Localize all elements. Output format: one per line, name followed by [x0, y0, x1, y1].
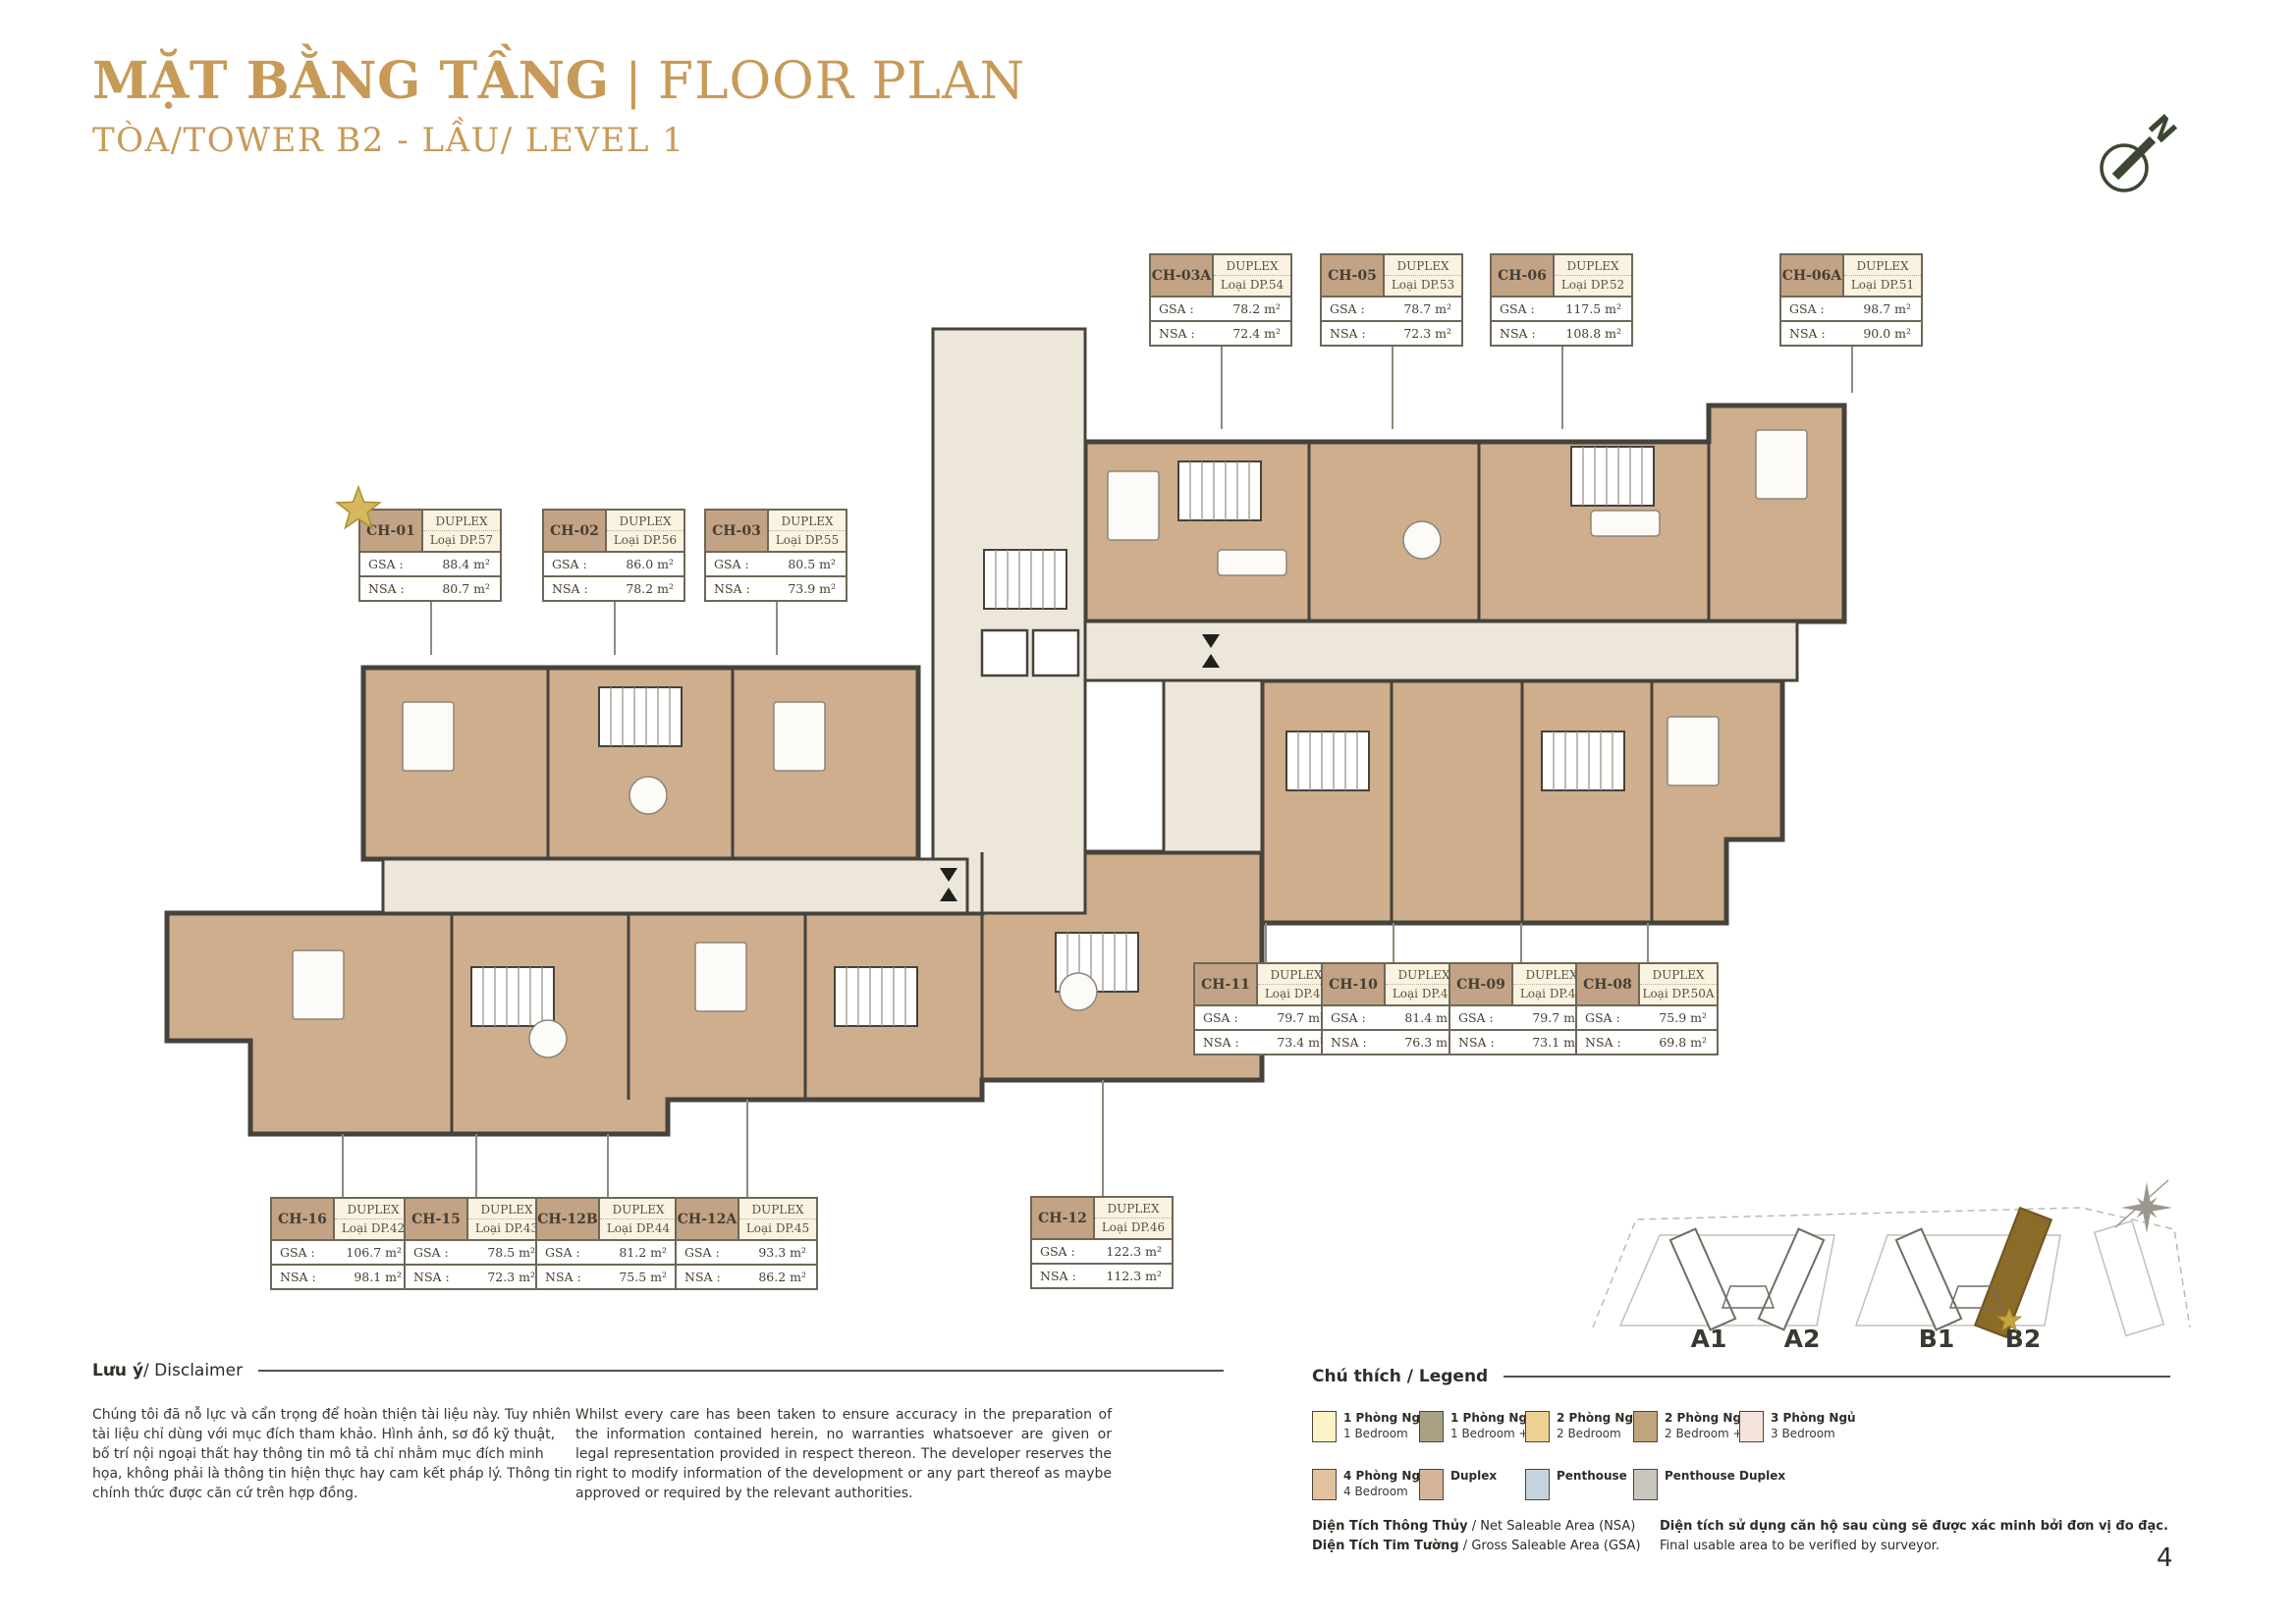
key-plan: A1 A2 B1 B2 — [1593, 1180, 2190, 1353]
leader-line — [614, 602, 616, 655]
gsa-value: 122.3 m² — [1106, 1244, 1162, 1259]
unit-nsa-row: NSA : 73.1 m² — [1450, 1029, 1590, 1054]
leader-line — [1392, 347, 1394, 429]
unit-layout-type: Loại DP.53 — [1385, 275, 1461, 296]
unit-type: DUPLEX — [1385, 255, 1461, 275]
gsa-label: GSA : — [552, 557, 587, 571]
legend-label-en: 2 Bedroom — [1557, 1427, 1642, 1442]
surveyor-note-vi: Diện tích sử dụng căn hộ sau cùng sẽ đượ… — [1660, 1517, 2168, 1537]
nsa-value: 72.4 m² — [1232, 326, 1281, 341]
disclaimer-heading: Lưu ý / Disclaimer — [92, 1361, 1224, 1380]
compass-icon: N — [2102, 109, 2183, 190]
unit-type: DUPLEX — [1640, 964, 1717, 984]
gsa-label: GSA : — [1789, 301, 1825, 316]
unit-nsa-row: NSA : 78.2 m² — [544, 575, 683, 600]
unit-type: DUPLEX — [335, 1199, 411, 1218]
nsa-value: 73.4 m² — [1277, 1035, 1325, 1050]
gsa-label: GSA : — [1331, 1010, 1366, 1025]
unit-type: DUPLEX — [1214, 255, 1290, 275]
legend-labels: 1 Phòng Ngủ 1 Bedroom — [1343, 1411, 1429, 1442]
gsa-value: 78.2 m² — [1232, 301, 1281, 316]
gsa-value: 79.7 m² — [1532, 1010, 1580, 1025]
disclaimer-text-vi: Chúng tôi đã nỗ lực và cẩn trọng để hoàn… — [92, 1406, 575, 1503]
unit-gsa-row: GSA : 78.2 m² — [1151, 296, 1290, 320]
unit-card-CH-06: CH-06 DUPLEX Loại DP.52 GSA : 117.5 m² N… — [1490, 253, 1633, 347]
unit-nsa-row: NSA : 72.3 m² — [406, 1264, 545, 1288]
key-plan-label-b1: B1 — [1919, 1325, 1954, 1353]
gsa-label: GSA : — [545, 1245, 580, 1260]
gsa-label: GSA : — [368, 557, 404, 571]
key-plan-label-a1: A1 — [1691, 1325, 1727, 1353]
gsa-value: 117.5 m² — [1565, 301, 1621, 316]
unit-card-CH-11: CH-11 DUPLEX Loại DP.47 GSA : 79.7 m² NS… — [1193, 962, 1337, 1055]
nsa-label: NSA : — [280, 1270, 316, 1284]
unit-id: CH-03A — [1151, 255, 1214, 296]
legend-item: 3 Phòng Ngủ 3 Bedroom — [1739, 1411, 1856, 1442]
legend-notes-left: Diện Tích Thông Thủy / Net Saleable Area… — [1312, 1517, 1641, 1556]
page-title-separator: | — [626, 53, 642, 110]
unit-layout-type: Loại DP.46 — [1095, 1217, 1172, 1238]
nsa-label: NSA : — [552, 581, 588, 596]
disclaimer-text-en: Whilst every care has been taken to ensu… — [575, 1406, 1112, 1503]
nsa-value: 73.1 m² — [1532, 1035, 1580, 1050]
disclaimer-section: Lưu ý / Disclaimer Chúng tôi đã nỗ lực v… — [92, 1361, 1224, 1503]
unit-card-CH-01: CH-01 DUPLEX Loại DP.57 GSA : 88.4 m² NS… — [358, 509, 502, 602]
unit-card-CH-12B: CH-12B DUPLEX Loại DP.44 GSA : 81.2 m² N… — [535, 1197, 679, 1290]
legend-swatch — [1419, 1469, 1444, 1500]
unit-nsa-row: NSA : 73.4 m² — [1195, 1029, 1335, 1054]
unit-id: CH-05 — [1322, 255, 1385, 296]
nsa-value: 86.2 m² — [758, 1270, 806, 1284]
gsa-value: 88.4 m² — [442, 557, 490, 571]
legend-label-en: 1 Bedroom — [1343, 1427, 1429, 1442]
unit-id: CH-11 — [1195, 964, 1258, 1004]
legend-label-vi: Duplex — [1450, 1469, 1497, 1485]
unit-nsa-row: NSA : 90.0 m² — [1781, 320, 1921, 345]
unit-layout-type: Loại DP.55 — [769, 530, 846, 551]
nsa-value: 72.3 m² — [487, 1270, 535, 1284]
tower-outline-extra — [2095, 1221, 2163, 1336]
unit-id: CH-12A — [677, 1199, 739, 1239]
unit-layout-type: Loại DP.43 — [468, 1218, 545, 1239]
leader-line — [1221, 347, 1223, 429]
unit-card-CH-08: CH-08 DUPLEX Loại DP.50A GSA : 75.9 m² N… — [1575, 962, 1719, 1055]
legend-label-vi: Penthouse Duplex — [1665, 1469, 1785, 1485]
unit-nsa-row: NSA : 108.8 m² — [1492, 320, 1631, 345]
legend-item: Penthouse Duplex — [1633, 1469, 1785, 1500]
legend-label-en: 4 Bedroom — [1343, 1485, 1429, 1500]
unit-card-CH-09: CH-09 DUPLEX Loại DP.49 GSA : 79.7 m² NS… — [1449, 962, 1592, 1055]
unit-type: DUPLEX — [739, 1199, 816, 1218]
gsa-label: GSA : — [684, 1245, 720, 1260]
unit-layout-type: Loại DP.56 — [607, 530, 683, 551]
unit-type: DUPLEX — [1555, 255, 1631, 275]
unit-nsa-row: NSA : 76.3 m² — [1323, 1029, 1462, 1054]
nsa-value: 108.8 m² — [1565, 326, 1621, 341]
left-corridor — [383, 859, 967, 913]
unit-layout-type: Loại DP.51 — [1844, 275, 1921, 296]
legend-label-vi: Penthouse — [1557, 1469, 1627, 1485]
key-plan-label-b2: B2 — [2005, 1325, 2041, 1353]
unit-nsa-row: NSA : 72.3 m² — [1322, 320, 1461, 345]
unit-nsa-row: NSA : 75.5 m² — [537, 1264, 677, 1288]
unit-gsa-row: GSA : 98.7 m² — [1781, 296, 1921, 320]
nsa-value: 90.0 m² — [1863, 326, 1911, 341]
unit-layout-type: Loại DP.45 — [739, 1218, 816, 1239]
nsa-label: NSA : — [1040, 1269, 1076, 1283]
legend-swatch — [1525, 1411, 1550, 1442]
unit-gsa-row: GSA : 88.4 m² — [360, 551, 500, 575]
tower-b1-shape — [1896, 1229, 1961, 1330]
legend-notes-right: Diện tích sử dụng căn hộ sau cùng sẽ đượ… — [1660, 1517, 2168, 1556]
unit-nsa-row: NSA : 72.4 m² — [1151, 320, 1290, 345]
nsa-label: NSA : — [1500, 326, 1536, 341]
unit-gsa-row: GSA : 78.5 m² — [406, 1239, 545, 1264]
unit-card-CH-12A: CH-12A DUPLEX Loại DP.45 GSA : 93.3 m² N… — [675, 1197, 818, 1290]
nsa-label: NSA : — [1458, 1035, 1495, 1050]
unit-card-CH-12: CH-12 DUPLEX Loại DP.46 GSA : 122.3 m² N… — [1030, 1196, 1174, 1289]
gsa-value: 86.0 m² — [626, 557, 674, 571]
nsa-label: NSA : — [1331, 1035, 1367, 1050]
unit-layout-type: Loại DP.42 — [335, 1218, 411, 1239]
unit-gsa-row: GSA : 122.3 m² — [1032, 1238, 1172, 1263]
legend-labels: Penthouse — [1557, 1469, 1627, 1500]
nsa-label: NSA : — [368, 581, 405, 596]
unit-layout-type: Loại DP.50A — [1640, 984, 1717, 1004]
nsa-label: NSA : — [1789, 326, 1826, 341]
gsa-value: 78.7 m² — [1403, 301, 1451, 316]
legend-label-vi: 1 Phòng Ngủ — [1343, 1411, 1429, 1427]
vertical-corridor — [1164, 680, 1262, 852]
leader-line — [475, 1134, 477, 1197]
unit-layout-type: Loại DP.52 — [1555, 275, 1631, 296]
gsa-value: 79.7 m² — [1277, 1010, 1325, 1025]
nsa-value: 80.7 m² — [442, 581, 490, 596]
unit-id: CH-02 — [544, 511, 607, 551]
leader-line — [607, 1134, 609, 1197]
page-subtitle: TÒA/TOWER B2 - LẦU/ LEVEL 1 — [92, 121, 1025, 160]
legend-item: 1 Phòng Ngủ 1 Bedroom — [1312, 1411, 1429, 1442]
unit-nsa-row: NSA : 73.9 m² — [706, 575, 846, 600]
gsa-value: 75.9 m² — [1659, 1010, 1707, 1025]
gsa-note: Diện Tích Tim Tường / Gross Saleable Are… — [1312, 1537, 1641, 1556]
gsa-label: GSA : — [1458, 1010, 1494, 1025]
unit-id: CH-12 — [1032, 1198, 1095, 1238]
unit-card-CH-15: CH-15 DUPLEX Loại DP.43 GSA : 78.5 m² NS… — [404, 1197, 547, 1290]
unit-nsa-row: NSA : 86.2 m² — [677, 1264, 816, 1288]
gsa-value: 80.5 m² — [788, 557, 836, 571]
unit-layout-type: Loại DP.44 — [600, 1218, 677, 1239]
gsa-label: GSA : — [1040, 1244, 1075, 1259]
unit-card-CH-06A: CH-06A DUPLEX Loại DP.51 GSA : 98.7 m² N… — [1779, 253, 1923, 347]
unit-nsa-row: NSA : 112.3 m² — [1032, 1263, 1172, 1287]
unit-card-CH-03A: CH-03A DUPLEX Loại DP.54 GSA : 78.2 m² N… — [1149, 253, 1292, 347]
legend-swatch — [1633, 1411, 1658, 1442]
unit-id: CH-16 — [272, 1199, 335, 1239]
legend-labels: 4 Phòng Ngủ 4 Bedroom — [1343, 1469, 1429, 1500]
legend-section: Chú thích / Legend — [1312, 1367, 2170, 1386]
leader-line — [1265, 923, 1267, 962]
unit-card-CH-16: CH-16 DUPLEX Loại DP.42 GSA : 106.7 m² N… — [270, 1197, 413, 1290]
unit-type: DUPLEX — [607, 511, 683, 530]
nsa-label: NSA : — [684, 1270, 721, 1284]
unit-id: CH-15 — [406, 1199, 468, 1239]
unit-id: CH-08 — [1577, 964, 1640, 1004]
unit-card-CH-10: CH-10 DUPLEX Loại DP.48 GSA : 81.4 m² NS… — [1321, 962, 1464, 1055]
legend-swatch — [1419, 1411, 1444, 1442]
unit-id: CH-12B — [537, 1199, 600, 1239]
unit-gsa-row: GSA : 81.2 m² — [537, 1239, 677, 1264]
nsa-label: NSA : — [714, 581, 750, 596]
nsa-label: NSA : — [1585, 1035, 1621, 1050]
nsa-value: 75.5 m² — [619, 1270, 667, 1284]
unit-gsa-row: GSA : 86.0 m² — [544, 551, 683, 575]
nsa-value: 78.2 m² — [626, 581, 674, 596]
legend-item: Penthouse — [1525, 1469, 1627, 1500]
unit-nsa-row: NSA : 69.8 m² — [1577, 1029, 1717, 1054]
unit-type: DUPLEX — [769, 511, 846, 530]
nsa-value: 69.8 m² — [1659, 1035, 1707, 1050]
legend-label-vi: 3 Phòng Ngủ — [1771, 1411, 1856, 1427]
tower-a2-shape — [1759, 1229, 1824, 1330]
disclaimer-heading-en: / Disclaimer — [143, 1361, 243, 1380]
legend-item: Duplex — [1419, 1469, 1497, 1500]
leader-line — [1520, 923, 1522, 962]
legend-swatch — [1739, 1411, 1764, 1442]
legend-swatch — [1525, 1469, 1550, 1500]
gsa-label: GSA : — [1203, 1010, 1238, 1025]
unit-layout-type: Loại DP.54 — [1214, 275, 1290, 296]
leader-line — [342, 1134, 344, 1197]
legend-labels: Penthouse Duplex — [1665, 1469, 1785, 1500]
surveyor-note-en: Final usable area to be verified by surv… — [1660, 1537, 2168, 1556]
unit-card-CH-03: CH-03 DUPLEX Loại DP.55 GSA : 80.5 m² NS… — [704, 509, 847, 602]
leader-line — [1561, 347, 1563, 429]
unit-gsa-row: GSA : 106.7 m² — [272, 1239, 411, 1264]
legend-heading: Chú thích / Legend — [1312, 1367, 1488, 1386]
nsa-value: 76.3 m² — [1404, 1035, 1452, 1050]
gsa-label: GSA : — [714, 557, 749, 571]
legend-label-vi: 2 Phòng Ngủ — [1557, 1411, 1642, 1427]
unit-card-CH-02: CH-02 DUPLEX Loại DP.56 GSA : 86.0 m² NS… — [542, 509, 685, 602]
legend-swatch — [1312, 1411, 1337, 1442]
gsa-value: 81.2 m² — [619, 1245, 667, 1260]
unit-id: CH-06 — [1492, 255, 1555, 296]
tower-a1-shape — [1670, 1229, 1735, 1330]
nsa-value: 98.1 m² — [354, 1270, 402, 1284]
legend-rule — [1503, 1376, 2170, 1378]
unit-id: CH-03 — [706, 511, 769, 551]
legend-labels: 3 Phòng Ngủ 3 Bedroom — [1771, 1411, 1856, 1442]
nsa-label: NSA : — [1203, 1035, 1239, 1050]
gsa-value: 81.4 m² — [1404, 1010, 1452, 1025]
legend-item: 4 Phòng Ngủ 4 Bedroom — [1312, 1469, 1429, 1500]
gsa-value: 93.3 m² — [758, 1245, 806, 1260]
unit-nsa-row: NSA : 80.7 m² — [360, 575, 500, 600]
gsa-value: 78.5 m² — [487, 1245, 535, 1260]
leader-line — [430, 602, 432, 655]
page-title-vi: MẶT BẰNG TẦNG — [92, 51, 610, 111]
page-title-en: FLOOR PLAN — [658, 52, 1025, 111]
leader-line — [746, 1100, 748, 1197]
gsa-label: GSA : — [1585, 1010, 1620, 1025]
unit-id: CH-09 — [1450, 964, 1513, 1004]
nsa-label: NSA : — [1159, 326, 1195, 341]
nsa-note: Diện Tích Thông Thủy / Net Saleable Area… — [1312, 1517, 1641, 1537]
nsa-value: 73.9 m² — [788, 581, 836, 596]
unit-type: DUPLEX — [468, 1199, 545, 1218]
highlight-star-icon — [333, 485, 384, 534]
unit-gsa-row: GSA : 117.5 m² — [1492, 296, 1631, 320]
unit-type: DUPLEX — [423, 511, 500, 530]
page-number: 4 — [2157, 1543, 2173, 1573]
gsa-value: 106.7 m² — [346, 1245, 402, 1260]
legend-labels: 2 Phòng Ngủ 2 Bedroom — [1557, 1411, 1642, 1442]
unit-gsa-row: GSA : 81.4 m² — [1323, 1004, 1462, 1029]
gsa-label: GSA : — [1330, 301, 1365, 316]
page-header: MẶT BẰNG TẦNG | FLOOR PLAN TÒA/TOWER B2 … — [92, 51, 1025, 160]
right-corridor — [1085, 622, 1797, 680]
gsa-label: GSA : — [1159, 301, 1194, 316]
leader-line — [1647, 923, 1649, 962]
unit-gsa-row: GSA : 78.7 m² — [1322, 296, 1461, 320]
leader-line — [1102, 1080, 1104, 1196]
legend-labels: Duplex — [1450, 1469, 1497, 1500]
nsa-label: NSA : — [413, 1270, 450, 1284]
unit-gsa-row: GSA : 80.5 m² — [706, 551, 846, 575]
legend-label-en: 3 Bedroom — [1771, 1427, 1856, 1442]
unit-nsa-row: NSA : 98.1 m² — [272, 1264, 411, 1288]
disclaimer-rule — [258, 1370, 1224, 1372]
unit-gsa-row: GSA : 93.3 m² — [677, 1239, 816, 1264]
gsa-value: 98.7 m² — [1863, 301, 1911, 316]
unit-card-CH-05: CH-05 DUPLEX Loại DP.53 GSA : 78.7 m² NS… — [1320, 253, 1463, 347]
legend-swatch — [1633, 1469, 1658, 1500]
gsa-label: GSA : — [413, 1245, 449, 1260]
unit-gsa-row: GSA : 75.9 m² — [1577, 1004, 1717, 1029]
nsa-value: 72.3 m² — [1403, 326, 1451, 341]
floor-plan-page: N A1 A2 B1 B2 — [0, 0, 2296, 1623]
unit-gsa-row: GSA : 79.7 m² — [1450, 1004, 1590, 1029]
lobby-core — [933, 329, 1085, 913]
gsa-label: GSA : — [1500, 301, 1535, 316]
unit-id: CH-10 — [1323, 964, 1386, 1004]
leader-line — [1851, 347, 1853, 393]
nsa-label: NSA : — [1330, 326, 1366, 341]
unit-type: DUPLEX — [1095, 1198, 1172, 1217]
legend-label-vi: 4 Phòng Ngủ — [1343, 1469, 1429, 1485]
key-plan-label-a2: A2 — [1784, 1325, 1821, 1353]
page-title: MẶT BẰNG TẦNG | FLOOR PLAN — [92, 51, 1025, 111]
unit-type: DUPLEX — [1844, 255, 1921, 275]
legend-swatch — [1312, 1469, 1337, 1500]
nsa-value: 112.3 m² — [1106, 1269, 1162, 1283]
disclaimer-heading-vi: Lưu ý — [92, 1361, 143, 1380]
unit-layout-type: Loại DP.57 — [423, 530, 500, 551]
gsa-label: GSA : — [280, 1245, 315, 1260]
leader-line — [1393, 923, 1394, 962]
unit-id: CH-06A — [1781, 255, 1844, 296]
legend-item: 2 Phòng Ngủ 2 Bedroom — [1525, 1411, 1642, 1442]
nsa-label: NSA : — [545, 1270, 581, 1284]
leader-line — [776, 602, 778, 655]
unit-type: DUPLEX — [600, 1199, 677, 1218]
unit-gsa-row: GSA : 79.7 m² — [1195, 1004, 1335, 1029]
